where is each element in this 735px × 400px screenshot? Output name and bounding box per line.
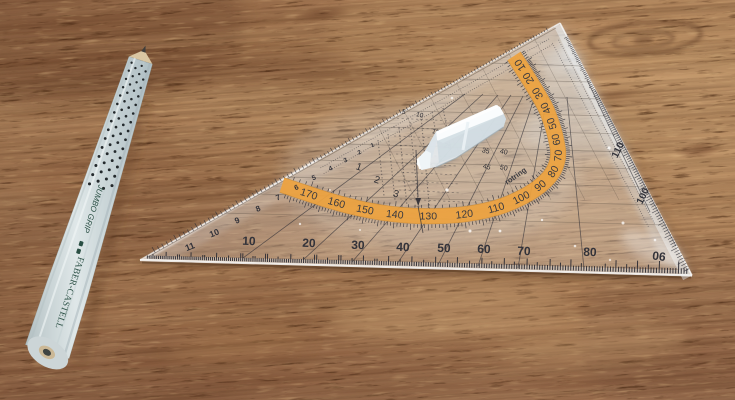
svg-text:90: 90 (651, 248, 666, 264)
svg-text:70: 70 (517, 244, 531, 259)
svg-text:70: 70 (552, 149, 565, 162)
svg-text:40: 40 (396, 240, 410, 255)
svg-text:30: 30 (351, 238, 365, 253)
svg-text:20: 20 (302, 236, 316, 251)
svg-text:60: 60 (477, 242, 491, 257)
svg-text:140: 140 (385, 208, 404, 222)
svg-text:50: 50 (437, 241, 451, 256)
svg-text:60: 60 (550, 132, 564, 146)
svg-text:120: 120 (455, 208, 474, 222)
svg-text:130: 130 (420, 211, 438, 223)
svg-text:10: 10 (242, 234, 256, 249)
svg-text:80: 80 (583, 245, 597, 260)
